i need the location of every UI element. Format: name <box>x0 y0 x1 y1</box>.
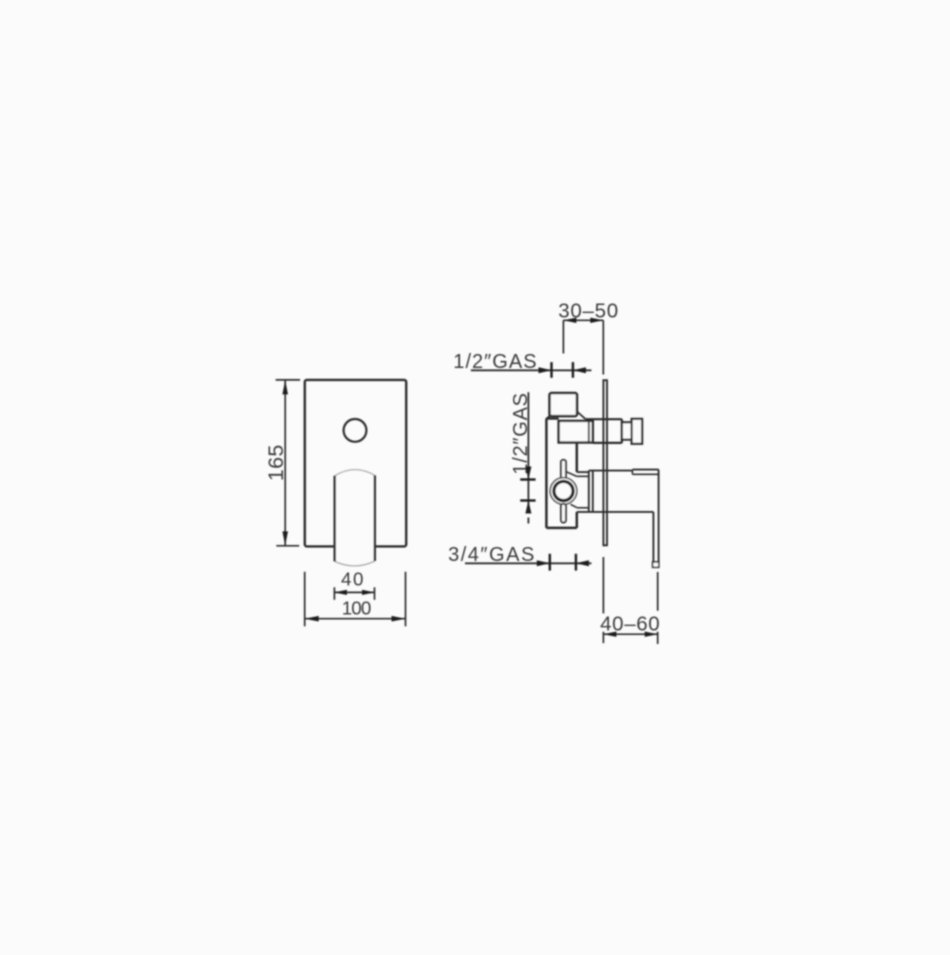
svg-text:30–50: 30–50 <box>558 299 618 322</box>
svg-text:40–60: 40–60 <box>600 612 660 635</box>
svg-text:165: 165 <box>264 445 288 482</box>
svg-text:100: 100 <box>342 598 372 619</box>
svg-text:40: 40 <box>341 568 363 589</box>
